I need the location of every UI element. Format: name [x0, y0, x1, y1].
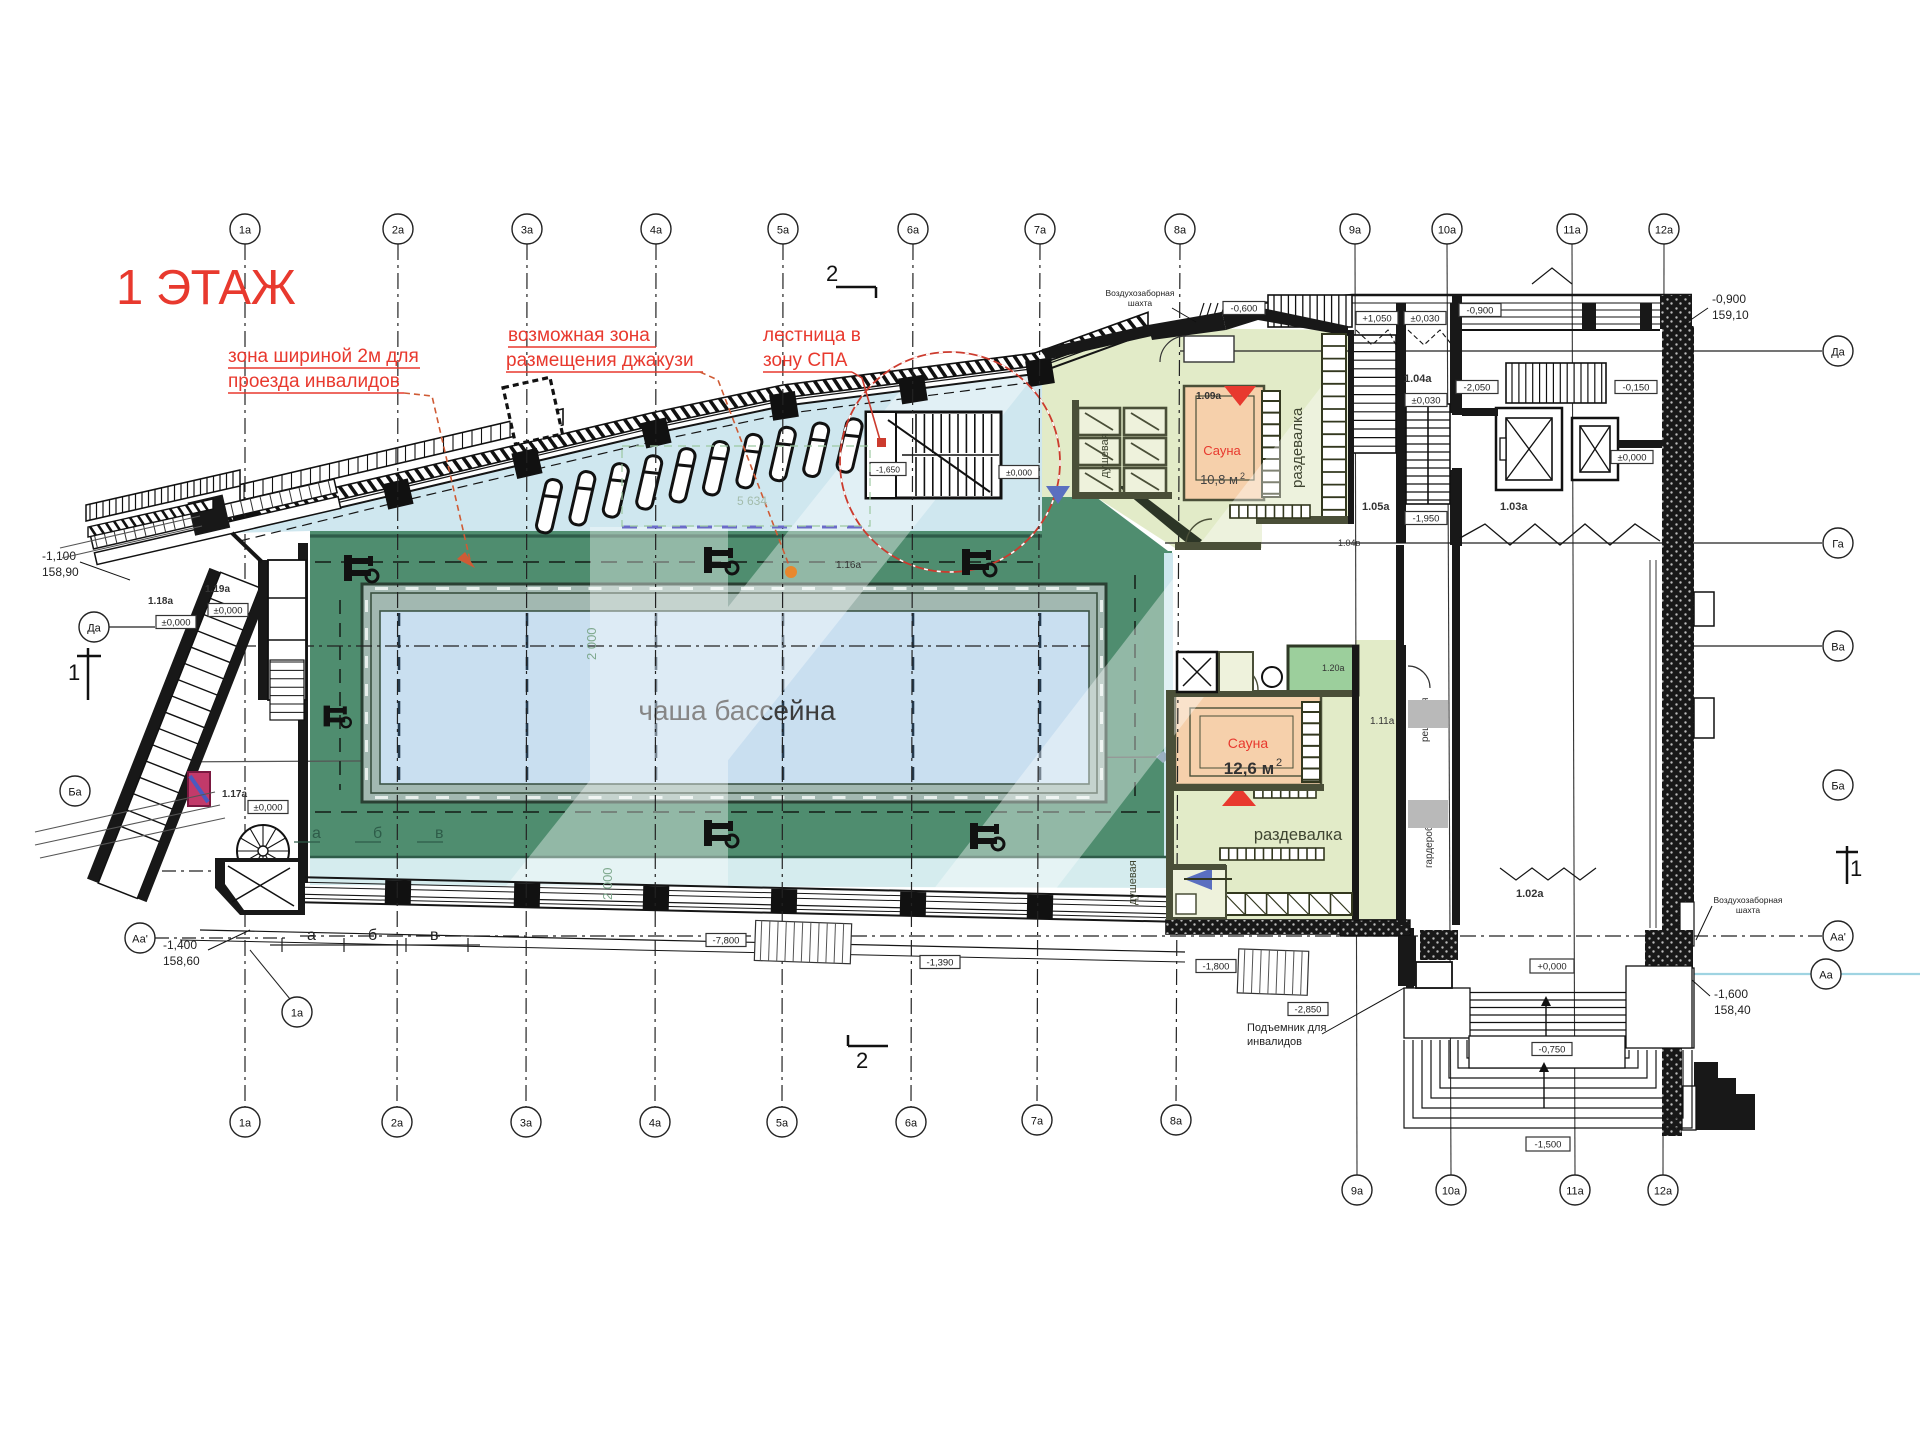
svg-text:2 000: 2 000	[600, 867, 615, 900]
svg-text:10,8 м: 10,8 м	[1200, 472, 1238, 487]
svg-text:±0,000: ±0,000	[162, 617, 191, 628]
svg-text:шахта: шахта	[1128, 298, 1152, 308]
svg-text:7а: 7а	[1031, 1116, 1044, 1128]
svg-text:-1,600: -1,600	[1714, 987, 1748, 1001]
svg-text:1.04а: 1.04а	[1404, 373, 1432, 385]
svg-text:-1,650: -1,650	[876, 464, 900, 474]
svg-text:1.04в: 1.04в	[1338, 538, 1361, 548]
svg-text:±0,000: ±0,000	[214, 605, 243, 616]
svg-text:возможная зона: возможная зона	[508, 325, 650, 346]
svg-text:Аа': Аа'	[132, 934, 148, 946]
svg-text:1.17а: 1.17а	[222, 789, 247, 800]
svg-text:5а: 5а	[776, 1118, 789, 1130]
svg-text:8а: 8а	[1174, 225, 1187, 237]
svg-text:Сауна: Сауна	[1203, 443, 1241, 458]
svg-text:Сауна: Сауна	[1228, 735, 1269, 751]
svg-text:в: в	[430, 927, 439, 944]
svg-text:раздевалка: раздевалка	[1289, 407, 1306, 488]
svg-text:6а: 6а	[905, 1118, 918, 1130]
svg-text:-2,850: -2,850	[1295, 1004, 1322, 1015]
svg-text:-1,390: -1,390	[927, 957, 954, 968]
svg-text:-0,750: -0,750	[1539, 1044, 1566, 1055]
svg-text:-1,800: -1,800	[1203, 961, 1230, 972]
svg-text:лестница в: лестница в	[763, 325, 861, 346]
svg-text:2а: 2а	[391, 1118, 404, 1130]
svg-text:душевая: душевая	[1127, 860, 1139, 905]
svg-text:10а: 10а	[1442, 1186, 1461, 1198]
svg-text:-1,950: -1,950	[1413, 513, 1440, 524]
svg-text:Ба: Ба	[68, 787, 82, 799]
svg-text:Ба: Ба	[1831, 781, 1845, 793]
svg-text:инвалидов: инвалидов	[1247, 1036, 1302, 1048]
svg-text:-0,600: -0,600	[1231, 303, 1258, 314]
svg-text:-0,900: -0,900	[1712, 292, 1746, 306]
svg-text:+1,050: +1,050	[1362, 313, 1391, 324]
svg-text:1 ЭТАЖ: 1 ЭТАЖ	[116, 261, 296, 315]
svg-text:10а: 10а	[1438, 225, 1457, 237]
svg-text:1.18а: 1.18а	[148, 596, 173, 607]
svg-text:±0,030: ±0,030	[1411, 313, 1440, 324]
svg-text:1.11а: 1.11а	[1370, 716, 1395, 727]
svg-text:±0,030: ±0,030	[1412, 395, 1441, 406]
svg-text:4а: 4а	[650, 225, 663, 237]
svg-text:2а: 2а	[392, 225, 405, 237]
svg-text:158,60: 158,60	[163, 954, 200, 968]
svg-text:Да: Да	[1831, 347, 1845, 359]
svg-text:-2,050: -2,050	[1464, 382, 1491, 393]
svg-text:11а: 11а	[1566, 1186, 1584, 1198]
svg-text:±0,000: ±0,000	[1618, 452, 1647, 463]
svg-text:12а: 12а	[1655, 225, 1674, 237]
svg-text:2: 2	[1240, 471, 1245, 481]
svg-text:в: в	[435, 825, 444, 842]
svg-text:1а: 1а	[239, 1118, 252, 1130]
svg-text:Воздухозаборная: Воздухозаборная	[1714, 895, 1783, 905]
svg-text:2 000: 2 000	[584, 627, 599, 660]
svg-text:а: а	[307, 927, 316, 944]
svg-text:12а: 12а	[1654, 1186, 1673, 1198]
svg-text:159,10: 159,10	[1712, 308, 1749, 322]
svg-text:1а: 1а	[291, 1008, 304, 1020]
svg-text:-7,800: -7,800	[713, 935, 740, 946]
svg-text:Да: Да	[87, 623, 101, 635]
svg-text:2: 2	[856, 1048, 868, 1073]
svg-text:Га: Га	[1832, 539, 1844, 551]
svg-text:1.09а: 1.09а	[1196, 391, 1221, 402]
svg-text:1.02а: 1.02а	[1516, 888, 1544, 900]
svg-text:зону СПА: зону СПА	[763, 350, 848, 371]
svg-text:9а: 9а	[1349, 225, 1362, 237]
svg-text:а: а	[312, 825, 321, 842]
svg-text:размещения джакузи: размещения джакузи	[506, 350, 694, 371]
svg-text:-1,500: -1,500	[1535, 1139, 1562, 1150]
svg-text:проезда инвалидов: проезда инвалидов	[228, 371, 400, 392]
svg-text:±0,000: ±0,000	[254, 802, 283, 813]
svg-text:б: б	[373, 825, 382, 842]
svg-text:-1,400: -1,400	[163, 938, 197, 952]
svg-text:-0,150: -0,150	[1623, 382, 1650, 393]
svg-text:1.20а: 1.20а	[1322, 663, 1345, 673]
svg-text:1а: 1а	[239, 225, 252, 237]
svg-text:3а: 3а	[521, 225, 534, 237]
svg-text:1: 1	[1850, 856, 1862, 881]
svg-text:душевая: душевая	[1099, 433, 1111, 478]
svg-text:б: б	[368, 927, 377, 944]
svg-text:3а: 3а	[520, 1118, 533, 1130]
svg-text:1.03а: 1.03а	[1500, 501, 1528, 513]
svg-text:5а: 5а	[777, 225, 790, 237]
svg-text:раздевалка: раздевалка	[1254, 826, 1343, 844]
svg-text:зона шириной 2м для: зона шириной 2м для	[228, 346, 419, 367]
svg-text:Аа': Аа'	[1830, 932, 1846, 944]
svg-text:1.16а: 1.16а	[836, 560, 861, 571]
svg-text:5 634: 5 634	[737, 494, 767, 508]
svg-text:8а: 8а	[1170, 1116, 1183, 1128]
svg-text:158,40: 158,40	[1714, 1003, 1751, 1017]
svg-text:гардероб: гардероб	[1423, 825, 1435, 868]
svg-text:±0,000: ±0,000	[1006, 467, 1032, 477]
svg-text:Аа: Аа	[1819, 970, 1833, 982]
svg-text:9а: 9а	[1351, 1186, 1364, 1198]
svg-text:1: 1	[68, 660, 80, 685]
svg-text:Ва: Ва	[1831, 642, 1845, 654]
svg-text:1.19а: 1.19а	[205, 584, 230, 595]
svg-text:7а: 7а	[1034, 225, 1047, 237]
svg-text:158,90: 158,90	[42, 565, 79, 579]
svg-text:-0,900: -0,900	[1467, 305, 1494, 316]
svg-text:2: 2	[826, 261, 838, 286]
svg-text:12,6 м: 12,6 м	[1224, 759, 1274, 778]
svg-text:11а: 11а	[1563, 225, 1581, 237]
svg-text:+0,000: +0,000	[1537, 961, 1566, 972]
svg-text:6а: 6а	[907, 225, 920, 237]
svg-text:Подъемник для: Подъемник для	[1247, 1022, 1326, 1034]
svg-text:1.05а: 1.05а	[1362, 501, 1390, 513]
svg-text:4а: 4а	[649, 1118, 662, 1130]
svg-text:2: 2	[1276, 757, 1282, 769]
svg-text:Воздухозаборная: Воздухозаборная	[1106, 288, 1175, 298]
svg-text:шахта: шахта	[1736, 905, 1760, 915]
